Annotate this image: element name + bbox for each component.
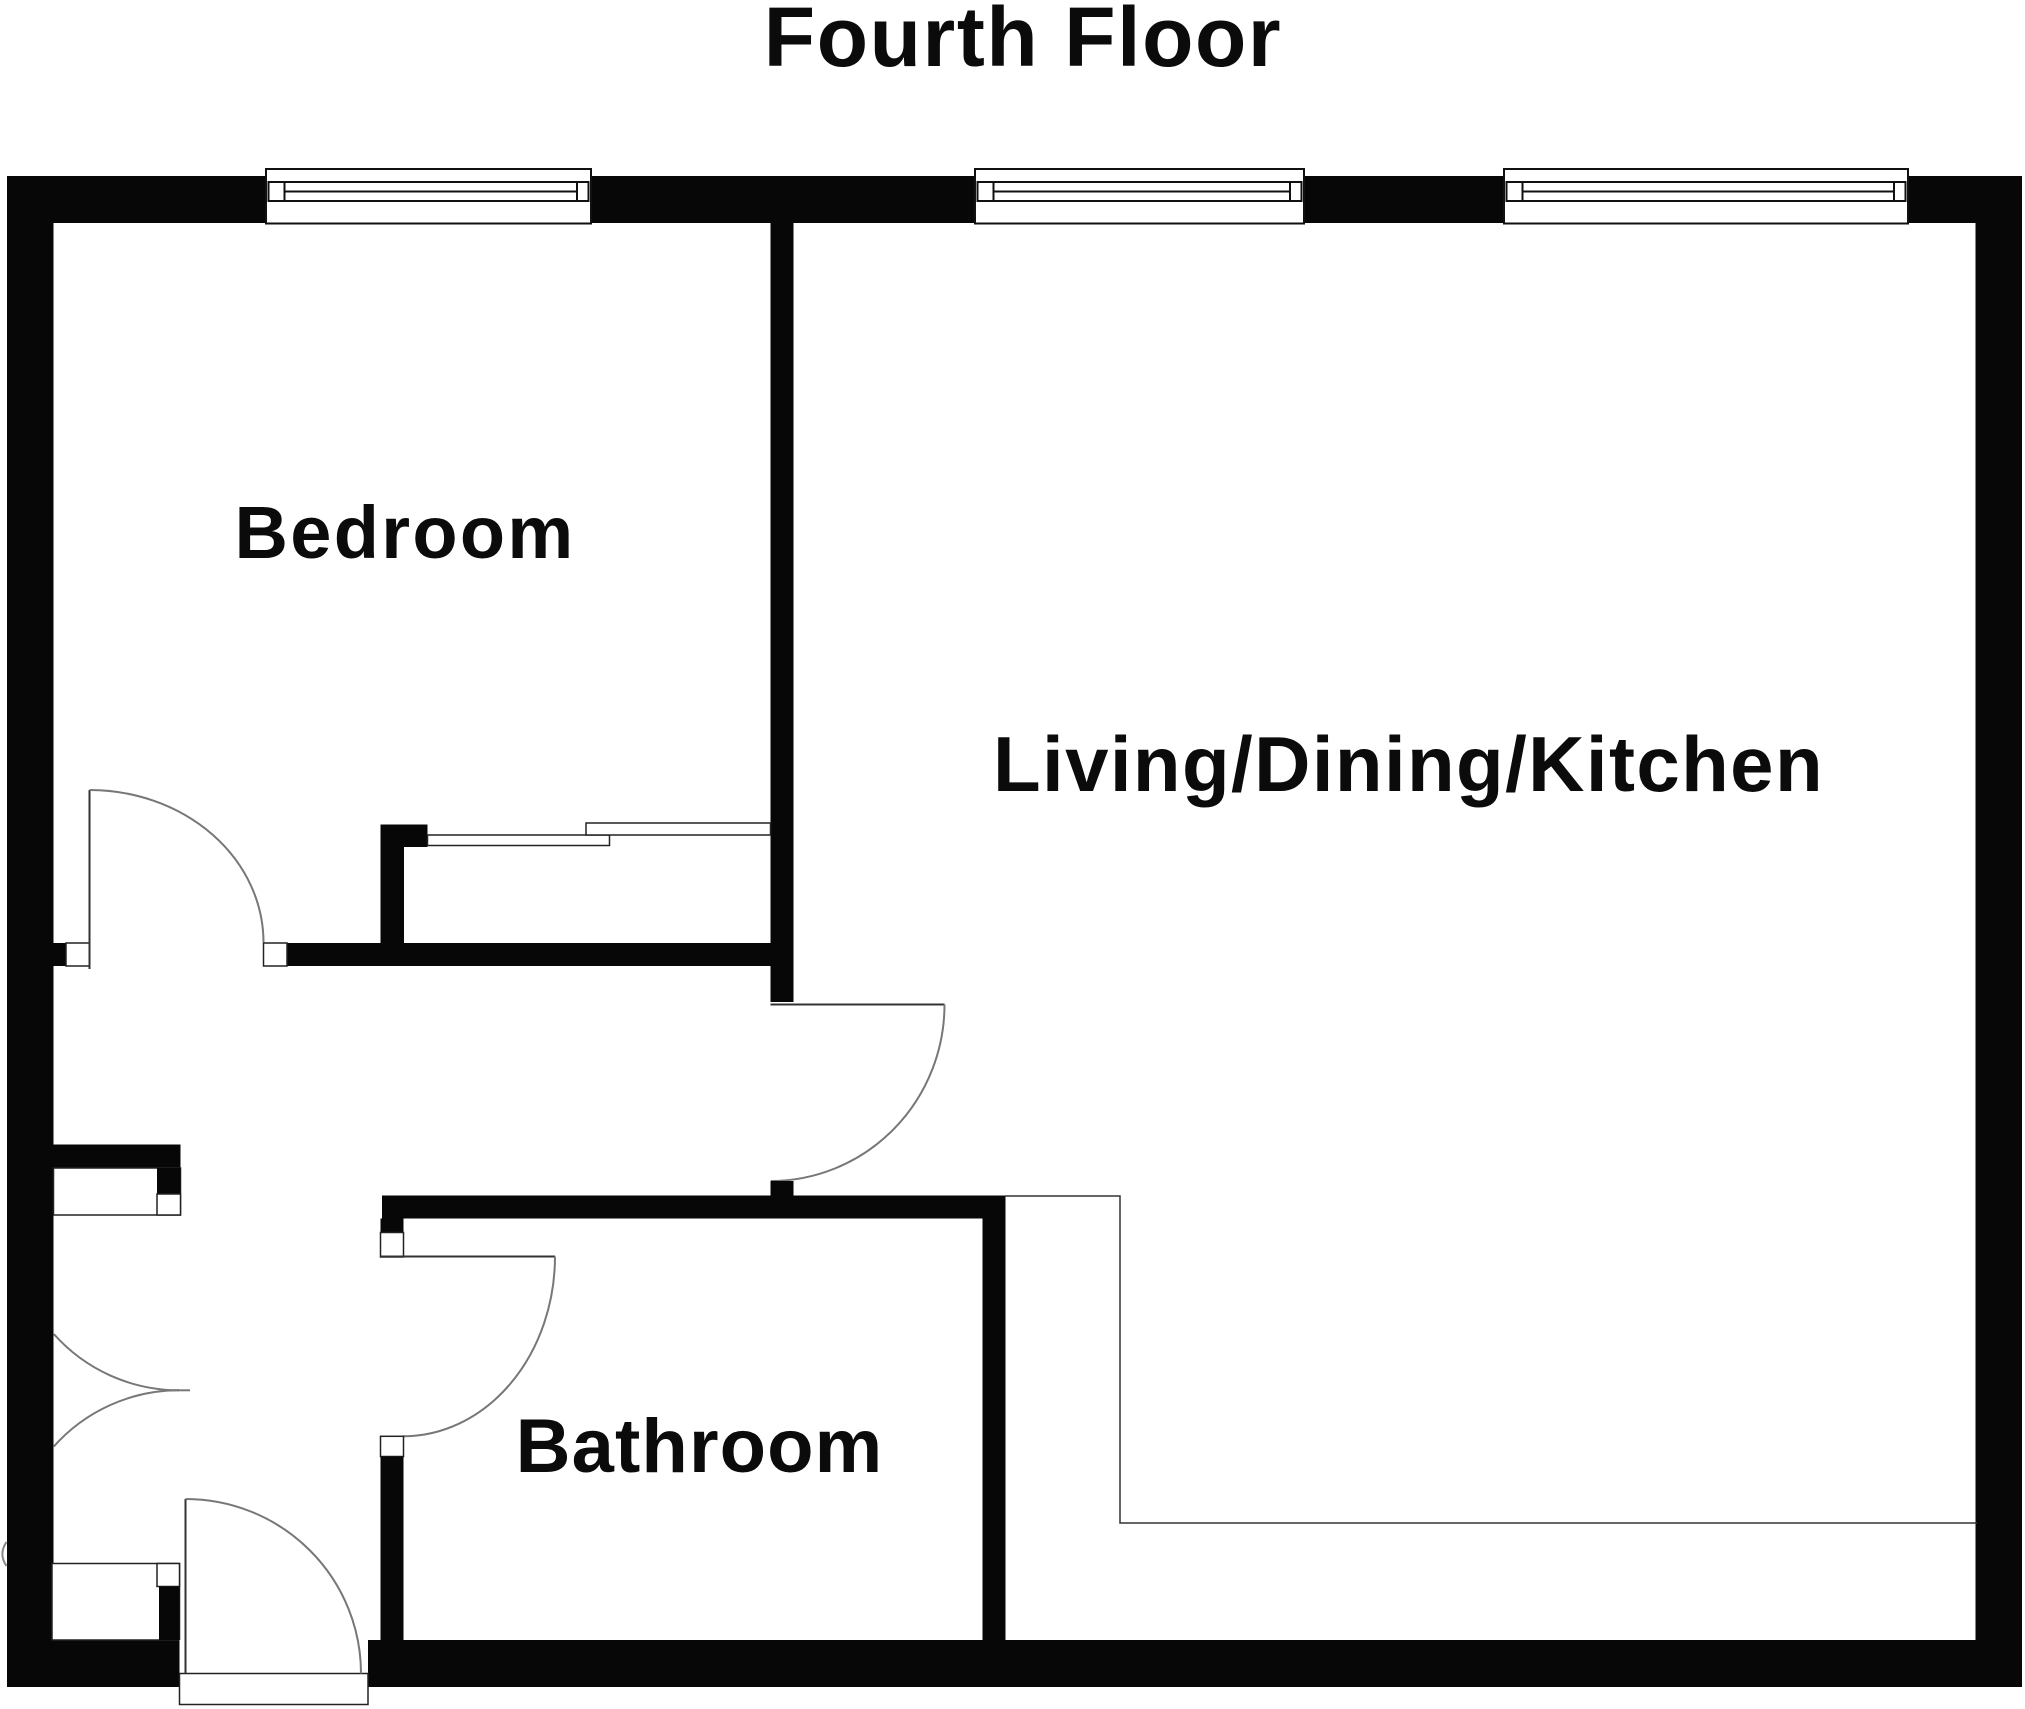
svg-text:Living/Dining/Kitchen: Living/Dining/Kitchen [993, 720, 1824, 808]
svg-text:Bathroom: Bathroom [516, 1404, 884, 1489]
svg-text:Fourth Floor: Fourth Floor [764, 0, 1282, 84]
svg-text:Bedroom: Bedroom [235, 491, 576, 574]
